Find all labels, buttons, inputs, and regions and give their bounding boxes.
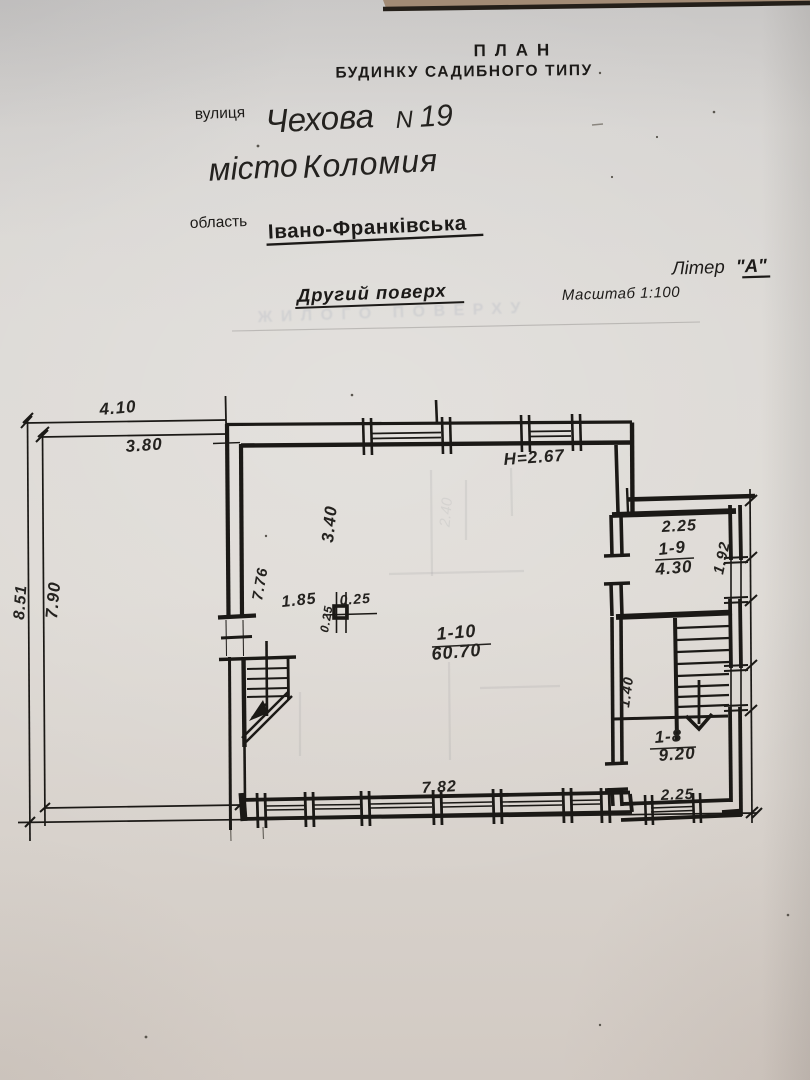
svg-text:8.51: 8.51 [11, 584, 30, 620]
svg-text:N: N [395, 106, 414, 134]
svg-text:область: область [190, 213, 248, 232]
svg-text:3.40: 3.40 [318, 505, 341, 544]
svg-text:0.25: 0.25 [317, 604, 336, 633]
svg-text:2.25: 2.25 [660, 786, 695, 804]
svg-text:60.70: 60.70 [431, 640, 483, 664]
svg-text:Івано-Франківська: Івано-Франківська [267, 212, 467, 244]
svg-text:БУДИНКУ САДИБНОГО ТИПУ: БУДИНКУ САДИБНОГО ТИПУ [335, 62, 593, 82]
svg-text:місто: місто [208, 147, 299, 188]
svg-text:"А": "А" [736, 255, 768, 277]
svg-text:2.25: 2.25 [660, 517, 697, 536]
svg-text:2.40: 2.40 [436, 496, 456, 528]
svg-text:1.85: 1.85 [281, 590, 318, 611]
svg-text:3.80: 3.80 [125, 434, 163, 456]
svg-text:7.82: 7.82 [421, 778, 457, 797]
svg-text:4.10: 4.10 [98, 397, 138, 419]
svg-text:Другий поверх: Другий поверх [294, 280, 446, 306]
svg-text:1-9: 1-9 [657, 537, 686, 559]
svg-text:1.40: 1.40 [616, 675, 636, 708]
svg-text:Літер: Літер [671, 256, 725, 279]
svg-text:Чехова: Чехова [265, 97, 375, 140]
svg-text:Масштаб 1:100: Масштаб 1:100 [562, 284, 681, 304]
svg-text:7.76: 7.76 [249, 566, 272, 602]
svg-text:7.90: 7.90 [42, 581, 64, 620]
svg-text:Коломия: Коломия [302, 142, 439, 185]
svg-text:H=2.67: H=2.67 [503, 446, 566, 469]
svg-text:ПЛАН: ПЛАН [473, 40, 558, 60]
svg-text:19: 19 [419, 99, 454, 134]
svg-text:0.25: 0.25 [339, 590, 371, 608]
svg-text:вулиця: вулиця [195, 104, 246, 123]
